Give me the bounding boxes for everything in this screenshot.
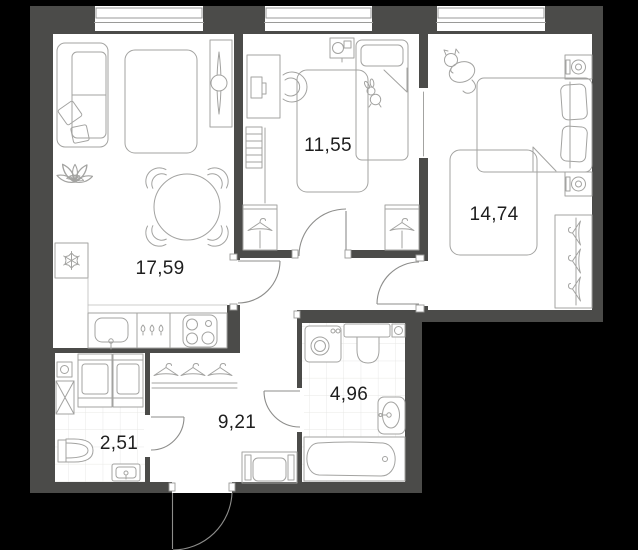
window-icon-3 — [436, 6, 546, 31]
opening-living-door — [233, 260, 242, 305]
vent-box-icon — [392, 324, 405, 337]
bath-sink-icon — [378, 397, 405, 434]
washing-machine-icon — [305, 326, 341, 362]
bedroom-door-cap-top — [416, 255, 424, 261]
wc-sink-icon — [112, 464, 140, 481]
room-label-kids: 11,55 — [304, 135, 352, 156]
washer-place-icon — [56, 381, 74, 414]
entrance-cap-left — [169, 483, 175, 491]
living-door-cap-bottom — [230, 304, 237, 310]
window-icon-1 — [94, 6, 204, 31]
living-door-cap-top — [230, 254, 237, 260]
bath-wall-cap — [294, 311, 300, 318]
room-label-bathroom: 4,96 — [330, 384, 368, 405]
room-label-hallway: 9,21 — [218, 412, 256, 433]
opening-bedroom-door — [416, 261, 428, 306]
bathtub-icon — [304, 437, 405, 481]
opening-entrance — [172, 482, 232, 493]
room-floor-hall-mid — [240, 310, 297, 353]
room-label-living: 17,59 — [135, 258, 184, 279]
floor-plan-stage: 17,59 11,55 14,74 9,21 4,96 2,51 — [0, 0, 638, 550]
entrance-cap-right — [229, 483, 235, 491]
kids-door-cap-left — [292, 250, 298, 258]
opening-wc-door — [144, 415, 152, 457]
wc-cabinet-icon-1 — [78, 354, 112, 407]
room-label-wc: 2,51 — [100, 433, 138, 454]
window-icon-2 — [264, 6, 373, 31]
wc-toilet-icon — [58, 439, 93, 462]
wc-cabinet-icon-2 — [113, 354, 143, 407]
room-floor-living — [53, 34, 234, 348]
room-label-bedroom: 14,74 — [469, 204, 518, 225]
kids-door-cap-right — [345, 250, 351, 258]
opening-kids-door — [297, 250, 347, 258]
windows — [94, 6, 546, 31]
kitchen-hall-wall — [227, 305, 240, 353]
mirror-box-icon — [57, 362, 72, 377]
bedroom-door-cap-bottom — [416, 305, 424, 312]
opening-bath-door — [296, 388, 304, 432]
room-floor-hall-top — [240, 258, 417, 310]
floor-plan-canvas: 17,59 11,55 14,74 9,21 4,96 2,51 — [0, 0, 638, 550]
